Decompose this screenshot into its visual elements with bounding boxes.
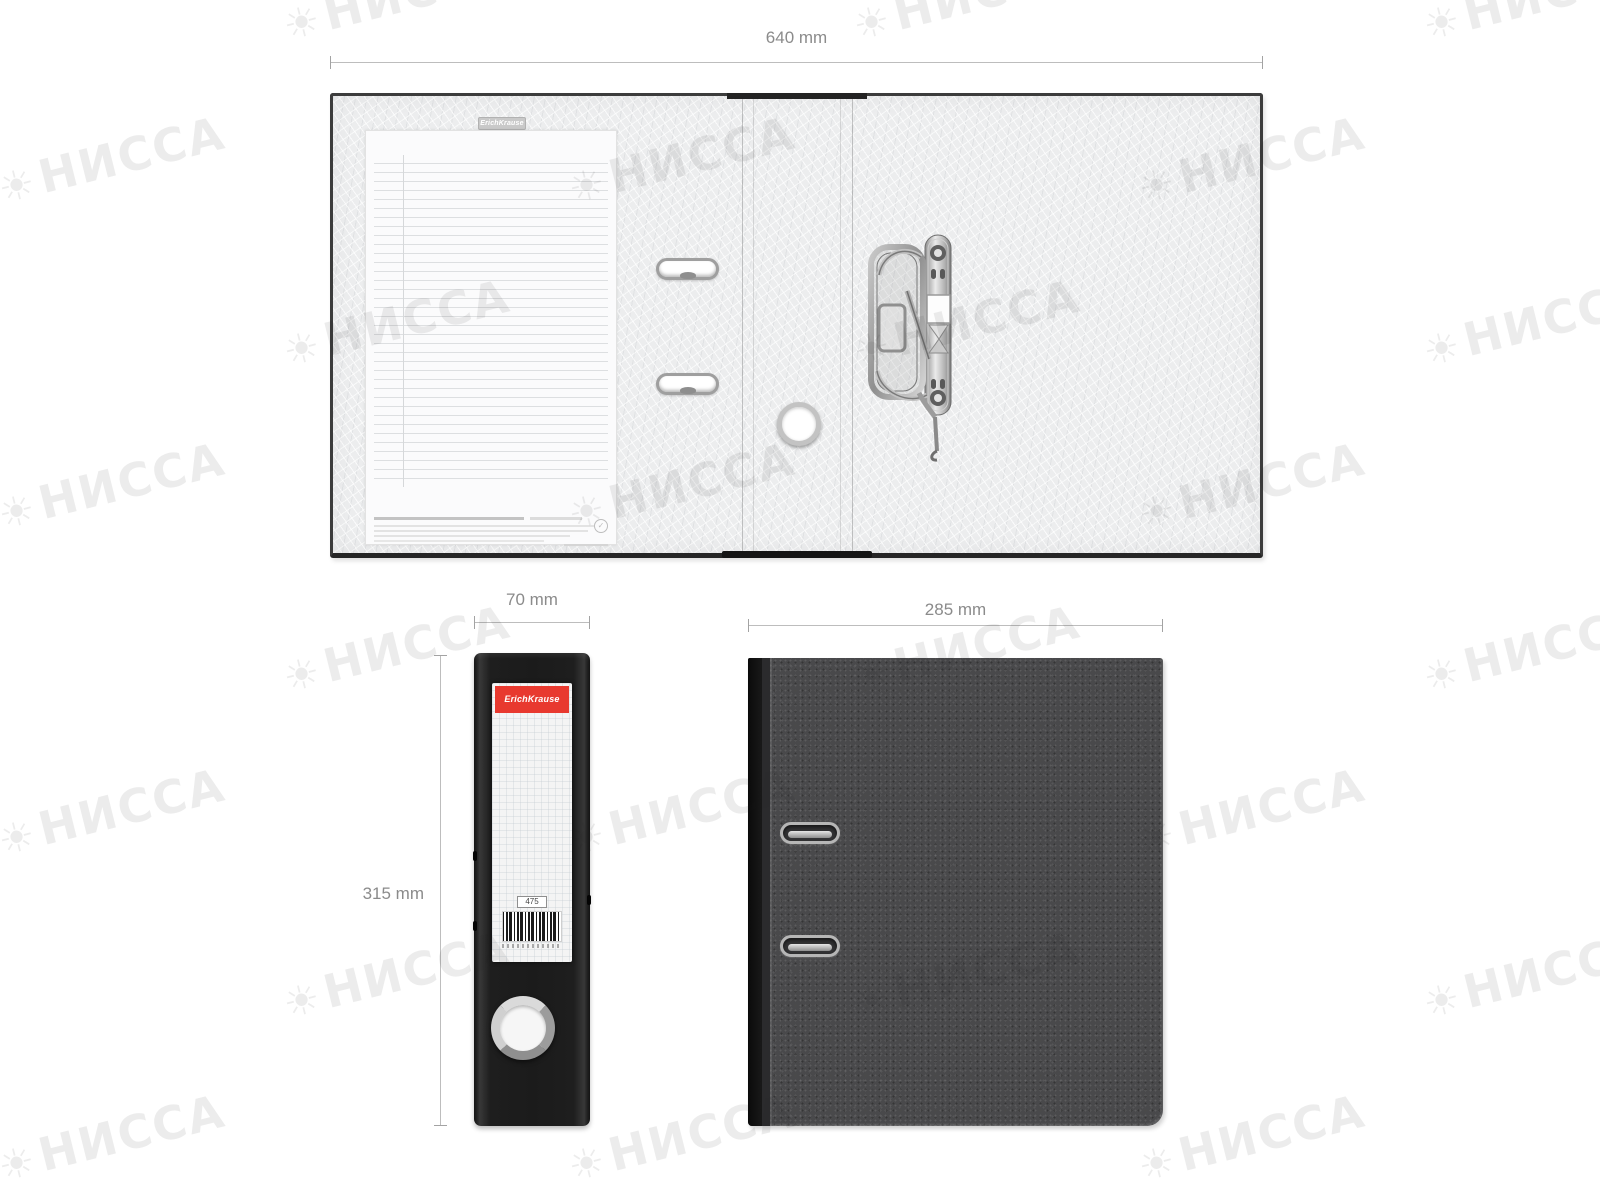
dimension-label-height: 315 mm — [312, 884, 424, 904]
spine-edge-strip-bottom — [722, 551, 872, 558]
watermark-logo-icon: ☀ — [1418, 973, 1467, 1029]
spine-crease-line — [840, 96, 841, 553]
dimension-label-cover-width: 285 mm — [748, 600, 1163, 620]
barcode-digits — [502, 944, 562, 948]
fine-print-line — [374, 530, 588, 532]
hinge-nub — [587, 895, 591, 905]
lever-arch-mechanism — [865, 233, 957, 463]
spine-crease-line — [742, 96, 743, 553]
watermark: ☀НИССА — [0, 106, 230, 215]
eyelet-slot-icon — [780, 935, 840, 957]
watermark: ☀НИССА — [1417, 269, 1600, 378]
cover-spine-strip — [748, 658, 762, 1126]
lever-arch-mechanism-art — [865, 233, 957, 463]
spine-view: ErichKrause 475 — [474, 653, 590, 1126]
watermark: ☀НИССА — [1417, 595, 1600, 704]
barcode — [502, 911, 562, 942]
round-stamp-icon: ✓ — [594, 519, 608, 533]
eyelet-slot-icon — [656, 373, 719, 395]
brand-label-header: ErichKrause — [495, 686, 569, 713]
ruled-lines — [374, 155, 608, 487]
website-text-line — [564, 544, 608, 546]
fine-print-line — [374, 540, 544, 542]
eyelet-metal-bar — [788, 831, 832, 838]
front-cover-view — [748, 658, 1163, 1126]
eyelet-notch — [680, 272, 696, 279]
watermark-logo-icon: ☀ — [1418, 647, 1467, 703]
watermark: ☀НИССА — [1417, 0, 1600, 51]
dimension-line-spine-width — [474, 622, 590, 623]
watermark-logo-icon: ☀ — [278, 0, 327, 50]
finger-ring-hole-icon — [777, 402, 821, 446]
watermark-logo-icon: ☀ — [0, 484, 42, 540]
watermark: ☀НИССА — [0, 432, 230, 541]
watermark: ☀НИССА — [1132, 1084, 1371, 1193]
cover-spine-highlight — [770, 658, 772, 1126]
spine-label: ErichKrause 475 — [492, 683, 572, 962]
spine-edge-strip-top — [727, 93, 867, 99]
open-binder-top-view: ErichKrause ✓ — [330, 93, 1263, 558]
eyelet-metal-bar — [788, 944, 832, 951]
watermark-logo-icon: ☀ — [1418, 0, 1467, 50]
eyelet-notch — [680, 387, 696, 394]
watermark: ☀НИССА — [0, 758, 230, 867]
watermark-logo-icon: ☀ — [1133, 1136, 1182, 1192]
fine-print-line — [374, 525, 594, 527]
eyelet-slot-icon — [656, 258, 719, 280]
watermark-logo-icon: ☀ — [0, 1136, 42, 1192]
dimension-label-open-width: 640 mm — [330, 28, 1263, 48]
hinge-nub — [473, 921, 477, 931]
watermark-logo-icon: ☀ — [1418, 321, 1467, 377]
watermark: ☀НИССА — [1417, 921, 1600, 1030]
spine-crease-line — [852, 96, 853, 553]
watermark-logo-icon: ☀ — [278, 321, 327, 377]
dimension-line-open-width — [330, 62, 1263, 63]
cover-spine-strip-inner — [762, 658, 770, 1126]
sheet-fine-print: ✓ — [374, 517, 608, 543]
fine-print-line — [530, 517, 582, 520]
margin-line — [403, 155, 404, 487]
spine-crease-line — [753, 96, 754, 553]
eyelet-slot-icon — [780, 822, 840, 844]
dimension-line-height — [440, 655, 441, 1126]
registration-sheet: ✓ — [365, 130, 617, 545]
hinge-nub — [473, 851, 477, 861]
product-image-stage: 640 mm ErichKrause ✓ — [0, 0, 1600, 1200]
watermark: ☀НИССА — [0, 1084, 230, 1193]
watermark-logo-icon: ☀ — [563, 1136, 612, 1192]
finger-hole-icon — [491, 996, 555, 1060]
watermark-logo-icon: ☀ — [278, 973, 327, 1029]
barcode-box-label: 475 — [517, 896, 547, 908]
fine-print-line — [374, 517, 524, 520]
watermark: ☀НИССА — [1132, 758, 1371, 867]
watermark-logo-icon: ☀ — [278, 647, 327, 703]
fine-print-line — [374, 535, 570, 537]
dimension-line-cover-width — [748, 625, 1163, 626]
watermark-logo-icon: ☀ — [0, 158, 42, 214]
brand-badge: ErichKrause — [478, 117, 526, 130]
watermark-logo-icon: ☀ — [0, 810, 42, 866]
dimension-label-spine-width: 70 mm — [474, 590, 590, 610]
